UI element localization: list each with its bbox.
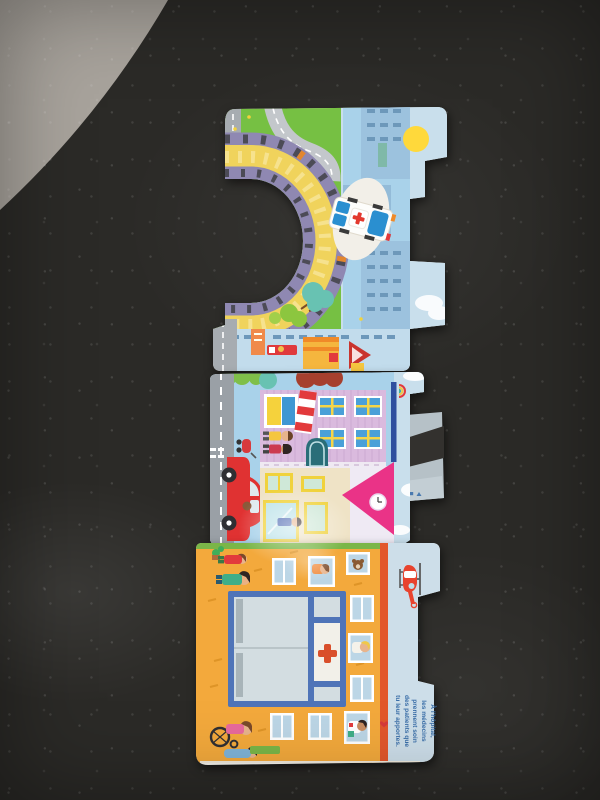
caption-line: les médecins xyxy=(418,687,427,755)
cream-building xyxy=(260,468,350,544)
caption-line: prennent soin xyxy=(410,687,419,755)
lavender-house xyxy=(260,390,386,468)
caption-line: tu leur apportes. xyxy=(392,687,401,755)
caption-text: À l'hôpital, les médecins prennent soin … xyxy=(392,687,436,755)
caption-line: À l'hôpital, xyxy=(427,687,436,755)
window-with-child xyxy=(308,556,335,587)
caption-line: des patients que xyxy=(401,687,410,755)
photo-of-board-book: À l'hôpital, les médecins prennent soin … xyxy=(0,0,600,800)
rainbow-icon xyxy=(399,385,405,397)
window-with-teddy xyxy=(346,552,370,575)
person-blue xyxy=(278,517,302,526)
book-page-street xyxy=(208,370,446,546)
book-page-city-circuit xyxy=(211,101,459,373)
orange-stripe xyxy=(380,541,388,765)
window-with-doctor xyxy=(344,711,370,744)
hospital-entrance xyxy=(228,591,346,707)
window-with-nurse xyxy=(348,633,373,663)
shop-window xyxy=(264,394,298,428)
driver-head xyxy=(243,502,252,511)
sign-pole xyxy=(391,382,397,462)
grass-patch-bottom xyxy=(250,746,280,754)
caption: À l'hôpital, les médecins prennent soin … xyxy=(392,687,436,755)
sun-icon xyxy=(403,126,429,152)
